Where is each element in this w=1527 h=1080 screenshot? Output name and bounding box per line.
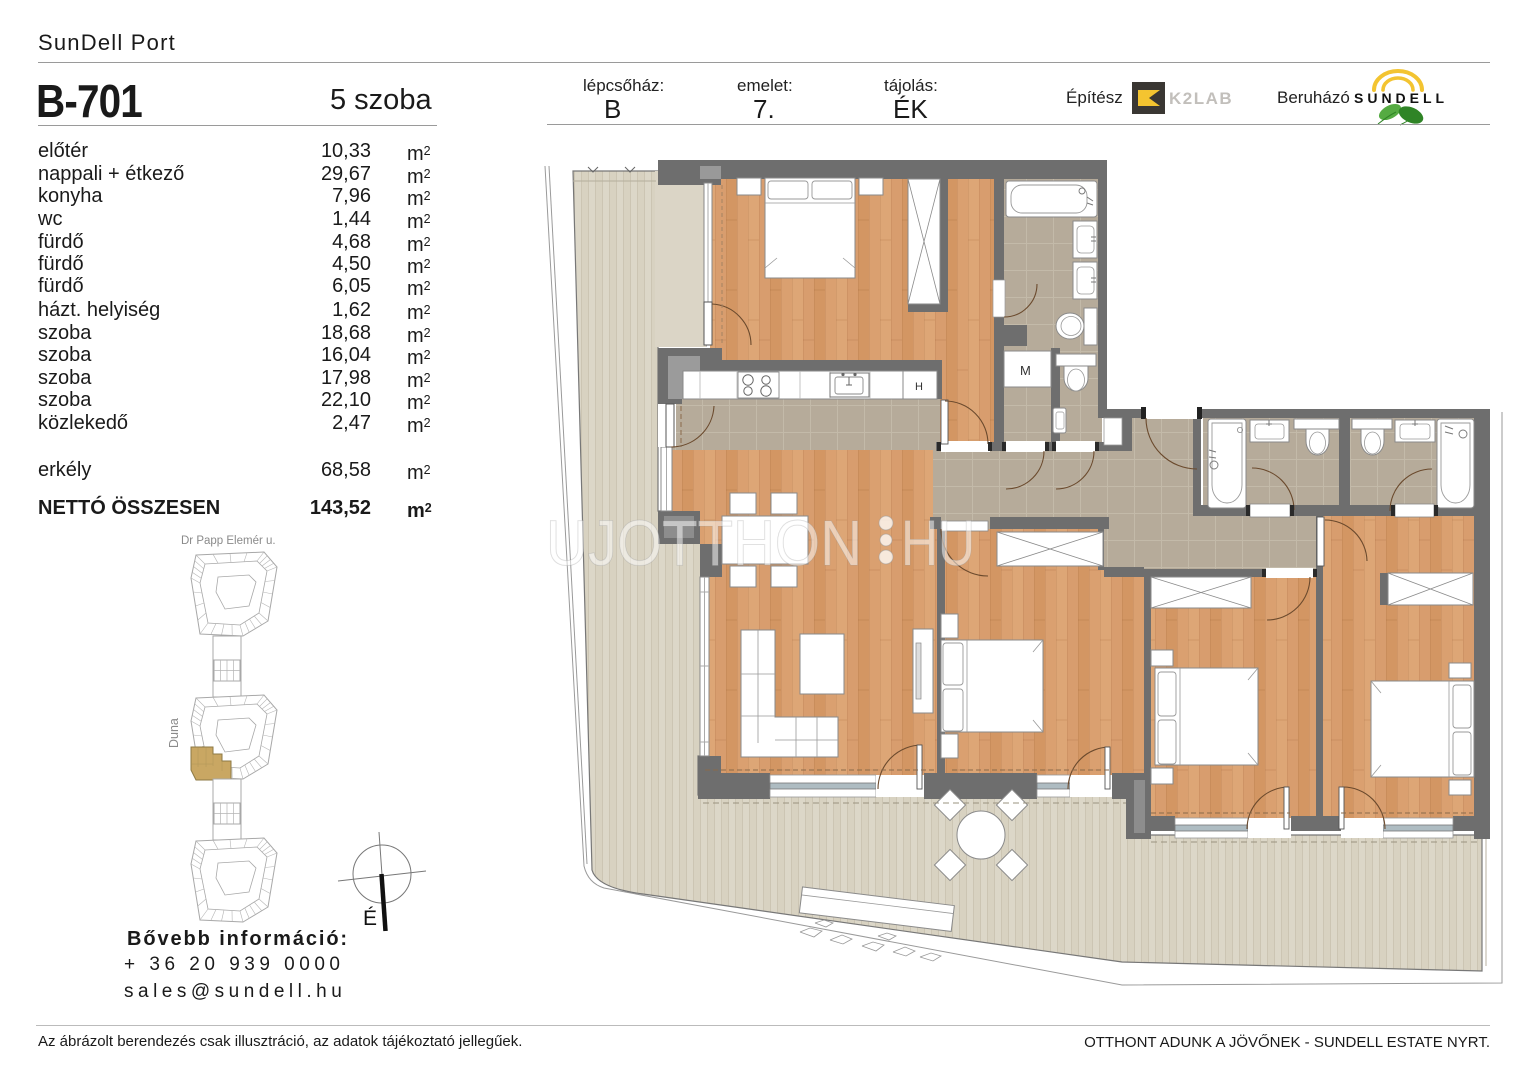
svg-text:UJOTTHON: UJOTTHON	[546, 507, 862, 579]
svg-text:HU: HU	[901, 507, 975, 579]
svg-text:Duna: Duna	[167, 718, 181, 748]
svg-text:É: É	[363, 907, 377, 930]
svg-text:Dr Papp Elemér u.: Dr Papp Elemér u.	[181, 535, 276, 547]
svg-text:H: H	[915, 381, 923, 393]
svg-text:M: M	[1020, 363, 1031, 378]
